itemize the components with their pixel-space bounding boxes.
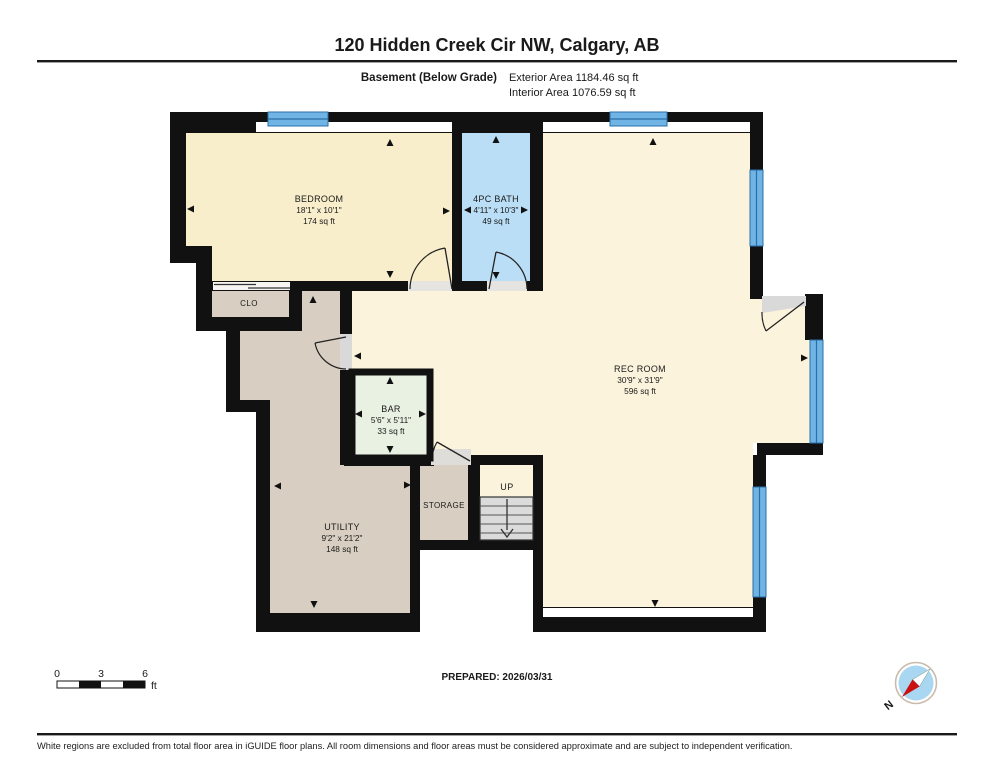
window-icon xyxy=(810,340,823,443)
svg-text:49 sq ft: 49 sq ft xyxy=(482,216,510,226)
svg-text:BAR: BAR xyxy=(381,404,401,414)
svg-text:596 sq ft: 596 sq ft xyxy=(624,386,657,396)
svg-text:UTILITY: UTILITY xyxy=(324,522,360,532)
window-icon xyxy=(753,487,766,597)
svg-text:33 sq ft: 33 sq ft xyxy=(377,426,405,436)
interior-area: Interior Area 1076.59 sq ft xyxy=(509,87,636,99)
prepared-date: PREPARED: 2026/03/31 xyxy=(442,672,553,683)
svg-text:REC ROOM: REC ROOM xyxy=(614,364,666,374)
header: 120 Hidden Creek Cir NW, Calgary, AB Bas… xyxy=(37,35,957,99)
header-rule xyxy=(37,60,957,62)
storage-label: STORAGE xyxy=(423,501,465,510)
footer-rule xyxy=(37,733,957,735)
scale-bar: 0 3 6 ft xyxy=(54,668,157,692)
exterior-area: Exterior Area 1184.46 sq ft xyxy=(509,72,638,84)
utility-label: UTILITY 9'2" x 21'2" 148 sq ft xyxy=(322,522,363,554)
svg-text:174 sq ft: 174 sq ft xyxy=(303,216,336,226)
scale-tick-3: 3 xyxy=(98,668,104,680)
svg-text:18'1" x 10'1": 18'1" x 10'1" xyxy=(296,205,342,215)
floor-plan-page: 120 Hidden Creek Cir NW, Calgary, AB Bas… xyxy=(0,0,993,768)
page-title: 120 Hidden Creek Cir NW, Calgary, AB xyxy=(334,35,659,55)
disclaimer-text: White regions are excluded from total fl… xyxy=(37,741,793,751)
svg-text:148 sq ft: 148 sq ft xyxy=(326,544,359,554)
sliding-door-icon xyxy=(213,282,290,290)
closet-label: CLO xyxy=(240,299,258,308)
window-icon xyxy=(268,112,328,126)
compass-icon: N xyxy=(882,663,936,713)
svg-text:4'11" x 10'3": 4'11" x 10'3" xyxy=(474,205,519,215)
floor-plan-canvas: 120 Hidden Creek Cir NW, Calgary, AB Bas… xyxy=(0,0,993,768)
svg-text:BEDROOM: BEDROOM xyxy=(295,194,344,204)
window-icon xyxy=(750,170,763,246)
svg-text:4PC BATH: 4PC BATH xyxy=(473,194,519,204)
stairs-up-label: UP xyxy=(500,482,514,492)
stair-landing-floor xyxy=(480,465,533,497)
scale-tick-6: 6 xyxy=(142,668,148,680)
svg-text:30'9" x 31'9": 30'9" x 31'9" xyxy=(617,375,663,385)
window-icon xyxy=(610,112,667,126)
svg-text:5'6" x 5'11": 5'6" x 5'11" xyxy=(371,415,411,425)
svg-text:9'2" x 21'2": 9'2" x 21'2" xyxy=(322,533,363,543)
scale-tick-0: 0 xyxy=(54,668,60,680)
compass-north-label: N xyxy=(882,698,896,712)
footer: 0 3 6 ft PREPARED: 2026/03/31 N White re… xyxy=(37,663,957,752)
staircase xyxy=(480,497,533,540)
scale-unit: ft xyxy=(151,680,157,692)
floor-label: Basement (Below Grade) xyxy=(361,72,497,84)
